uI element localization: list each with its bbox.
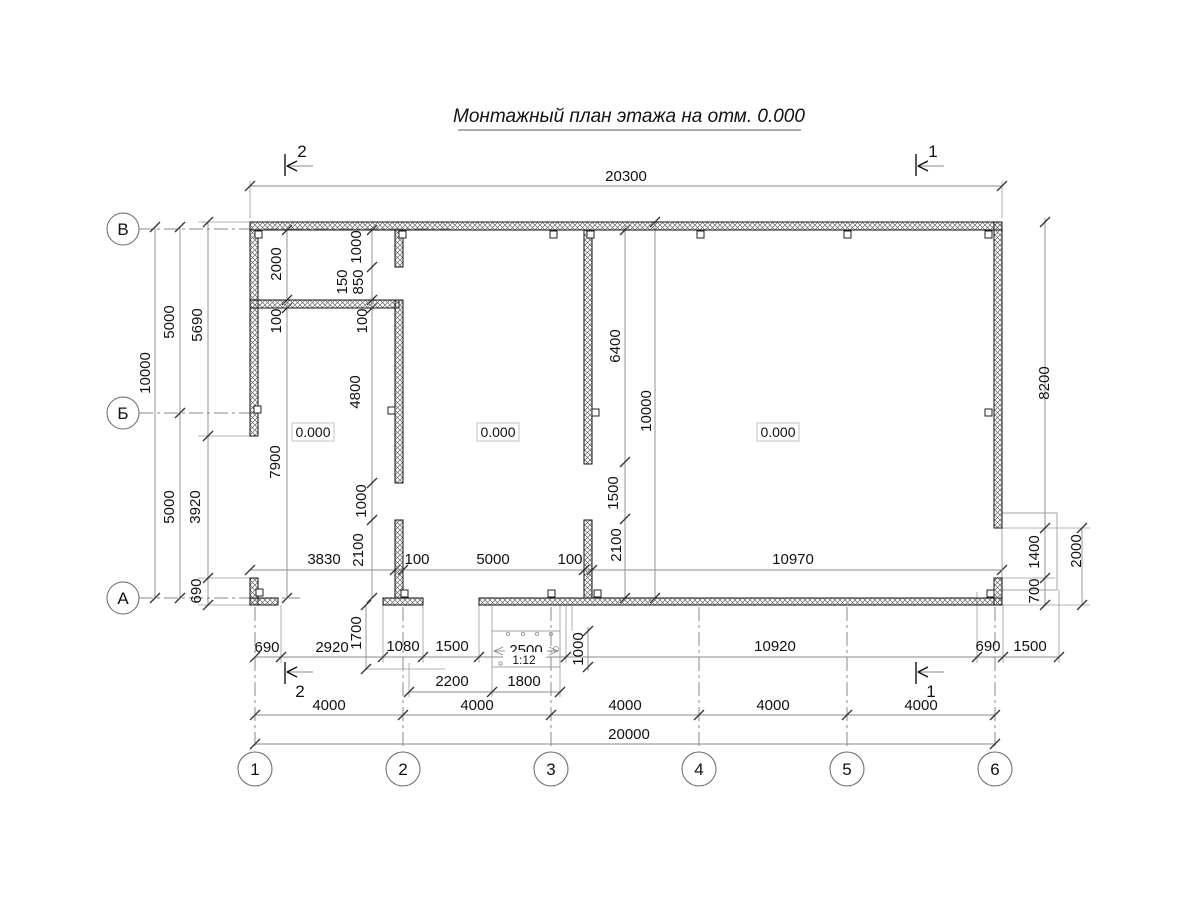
dim-label: 100 bbox=[557, 551, 582, 568]
joint-mark bbox=[256, 589, 263, 596]
axis-label: Б bbox=[117, 404, 128, 423]
axis-label: 3 bbox=[546, 760, 555, 779]
dim-label: 1500 bbox=[605, 476, 622, 509]
wall-panel bbox=[395, 520, 403, 598]
dim-label: 1000 bbox=[570, 632, 587, 665]
joint-mark bbox=[985, 231, 992, 238]
joint-mark bbox=[548, 590, 555, 597]
dim-label: 1:12 bbox=[512, 653, 536, 667]
dim-label: 4000 bbox=[904, 697, 937, 714]
dim-label: 10970 bbox=[772, 551, 814, 568]
axis-label: 5 bbox=[842, 760, 851, 779]
wall-panel bbox=[250, 598, 278, 605]
dim-label: 2000 bbox=[1068, 534, 1085, 567]
axis-label: А bbox=[117, 589, 129, 608]
dim-label: 3920 bbox=[187, 490, 204, 523]
joint-mark bbox=[255, 231, 262, 238]
section-label: 1 bbox=[928, 142, 937, 161]
room-elevation-label: 0.000 bbox=[760, 424, 795, 440]
page-title: Монтажный план этажа на отм. 0.000 bbox=[453, 106, 805, 127]
wall-panel bbox=[250, 300, 399, 308]
dim-label: 8200 bbox=[1036, 366, 1053, 399]
dim-label: 2100 bbox=[608, 528, 625, 561]
joint-mark bbox=[985, 409, 992, 416]
joint-mark bbox=[254, 406, 261, 413]
dim-label: 6400 bbox=[607, 329, 624, 362]
wall-panel bbox=[383, 598, 423, 605]
dim-label: 10000 bbox=[137, 352, 154, 394]
joint-mark bbox=[388, 407, 395, 414]
dim-label: 20000 bbox=[608, 726, 650, 743]
joint-mark bbox=[592, 409, 599, 416]
joint-mark bbox=[399, 231, 406, 238]
room-elevation-label: 0.000 bbox=[480, 424, 515, 440]
axis-label: 6 bbox=[990, 760, 999, 779]
dim-label: 2000 bbox=[268, 247, 285, 280]
axis-label: 1 bbox=[250, 760, 259, 779]
wall-panel bbox=[250, 230, 258, 436]
joint-mark bbox=[550, 231, 557, 238]
dim-label: 10920 bbox=[754, 638, 796, 655]
joint-mark bbox=[587, 231, 594, 238]
dim-label: 690 bbox=[188, 578, 205, 603]
axis-bubbles-layer: 123456ВБА bbox=[107, 213, 1012, 786]
dim-label: 1800 bbox=[507, 673, 540, 690]
drawing-sheet: Монтажный план этажа на отм. 0.000 2121 … bbox=[0, 0, 1200, 900]
ramp-dot bbox=[499, 662, 502, 665]
dim-label: 5000 bbox=[476, 551, 509, 568]
dim-label: 100 bbox=[268, 308, 285, 333]
dim-label: 5690 bbox=[189, 308, 206, 341]
joint-mark bbox=[844, 231, 851, 238]
dim-label: 1500 bbox=[435, 638, 468, 655]
dim-label: 4000 bbox=[756, 697, 789, 714]
dim-label: 5000 bbox=[161, 305, 178, 338]
axis-label: 2 bbox=[398, 760, 407, 779]
dim-label: 1000 bbox=[353, 484, 370, 517]
section-label: 2 bbox=[297, 142, 306, 161]
wall-panel bbox=[250, 222, 1002, 230]
dim-label: 690 bbox=[254, 639, 279, 656]
wall-panel bbox=[584, 520, 592, 598]
ramp-dot bbox=[535, 632, 538, 635]
joint-mark bbox=[401, 590, 408, 597]
dim-label: 2200 bbox=[435, 673, 468, 690]
dim-label: 10000 bbox=[638, 390, 655, 432]
dim-label: 100 bbox=[404, 551, 429, 568]
dim-label: 1400 bbox=[1026, 535, 1043, 568]
wall-panel bbox=[994, 222, 1002, 528]
dim-label: 3830 bbox=[307, 551, 340, 568]
dim-label: 1000 bbox=[348, 230, 365, 263]
dim-label: 1080 bbox=[386, 638, 419, 655]
wall-panel bbox=[584, 230, 592, 464]
room-elevation-label: 0.000 bbox=[295, 424, 330, 440]
joint-mark bbox=[697, 231, 704, 238]
section-label: 2 bbox=[295, 682, 304, 701]
dim-label: 2100 bbox=[350, 533, 367, 566]
dim-label: 5000 bbox=[161, 490, 178, 523]
wall-panel bbox=[395, 300, 403, 483]
dim-label: 700 bbox=[1026, 578, 1043, 603]
dim-label: 4000 bbox=[460, 697, 493, 714]
wall-panel bbox=[479, 598, 1002, 605]
floor-plan-drawing: Монтажный план этажа на отм. 0.000 2121 … bbox=[0, 0, 1200, 900]
dim-label: 4800 bbox=[347, 375, 364, 408]
dim-label: 1500 bbox=[1013, 638, 1046, 655]
ramp-dot bbox=[521, 632, 524, 635]
axis-label: 4 bbox=[694, 760, 703, 779]
dim-label: 690 bbox=[975, 638, 1000, 655]
dim-label: 850 bbox=[350, 269, 367, 294]
ramp-dot bbox=[506, 632, 509, 635]
wall-panel bbox=[994, 578, 1002, 605]
dim-label: 2920 bbox=[315, 639, 348, 656]
dimension-lines-layer bbox=[150, 181, 1087, 749]
joint-mark bbox=[987, 590, 994, 597]
dim-label: 150 bbox=[334, 269, 351, 294]
joint-mark bbox=[594, 590, 601, 597]
dim-label: 7900 bbox=[267, 445, 284, 478]
dim-label: 4000 bbox=[608, 697, 641, 714]
dim-label: 20300 bbox=[605, 168, 647, 185]
dim-label: 1700 bbox=[348, 616, 365, 649]
dim-label: 100 bbox=[354, 308, 371, 333]
dim-label: 4000 bbox=[312, 697, 345, 714]
axis-label: В bbox=[117, 220, 128, 239]
